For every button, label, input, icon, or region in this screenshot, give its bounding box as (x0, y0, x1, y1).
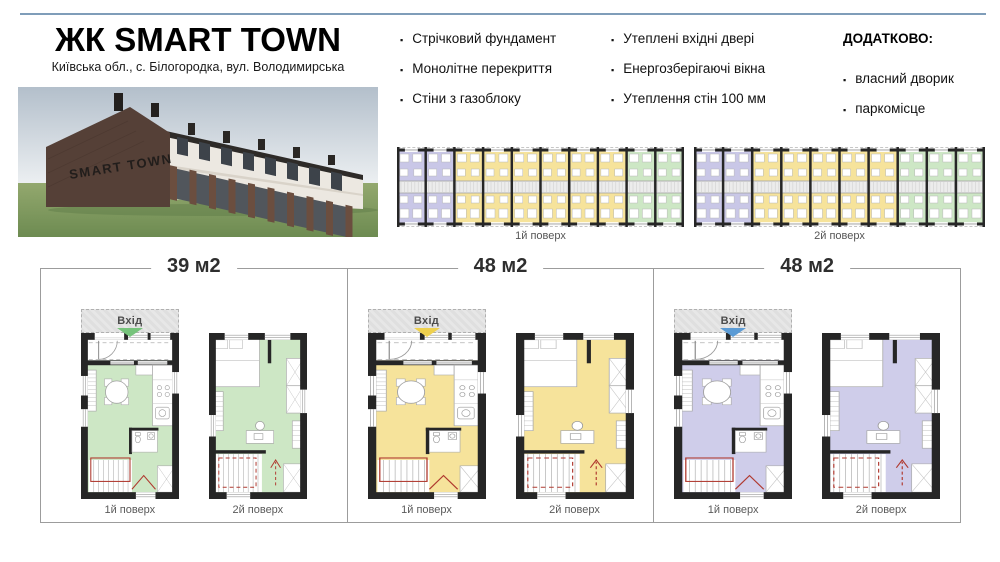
additional-item: власний дворик (843, 71, 954, 88)
floor2-label: 2й поверх (856, 504, 907, 516)
entrance-label: Вхід (117, 315, 142, 327)
unit-panel-48m2-a: 48 м2 Вхід 1й поверх 2й поверх (348, 268, 655, 523)
plan-column-floor2: 2й поверх (516, 333, 634, 516)
feature-item: Стіни з газоблоку (400, 91, 556, 108)
unit-plans: Вхід 1й поверх 2й поверх (41, 309, 347, 516)
entrance-arrow-icon (720, 328, 746, 337)
page-title: ЖК SMART TOWN (15, 21, 381, 59)
floor1-label: 1й поверх (401, 504, 452, 516)
unit-panel-39m2: 39 м2 Вхід 1й поверх 2й поверх (40, 268, 348, 523)
additional-list: власний дворик паркомісце (843, 71, 954, 118)
floor-plan-1-svg (674, 333, 792, 499)
floor-plan-2-svg (516, 333, 634, 499)
slide-header: ЖК SMART TOWN Київська обл., с. Білогоро… (15, 21, 381, 74)
feature-item: Утеплення стін 100 мм (611, 91, 766, 108)
feature-item: Стрічковий фундамент (400, 31, 556, 48)
floor2-label: 2й поверх (232, 504, 283, 516)
floor-plan-1-svg (81, 333, 179, 499)
site-plan-floor2-label: 2й поверх (694, 230, 985, 242)
top-divider-line (20, 13, 986, 15)
plan-column-floor2: 2й поверх (209, 333, 307, 516)
feature-item: Монолітне перекриття (400, 61, 556, 78)
additional-item: паркомісце (843, 101, 954, 118)
unit-area-title: 48 м2 (764, 255, 850, 278)
address-subtitle: Київська обл., с. Білогородка, вул. Воло… (15, 60, 381, 74)
entrance-label: Вхід (414, 315, 439, 327)
features-column-1: Стрічковий фундамент Монолітне перекритт… (400, 31, 556, 121)
building-photo: SMART TOWN (18, 87, 378, 237)
entrance-arrow-icon (414, 328, 440, 337)
site-plan-floor2: 2й поверх (694, 147, 985, 242)
unit-area-title: 39 м2 (151, 255, 237, 278)
plan-column-floor1: Вхід 1й поверх (81, 309, 179, 516)
floor2-label: 2й поверх (549, 504, 600, 516)
site-plan-floor1-svg (397, 147, 684, 227)
feature-item: Енергозберігаючі вікна (611, 61, 766, 78)
floor-plan-1-svg (368, 333, 486, 499)
floor1-label: 1й поверх (104, 504, 155, 516)
slide: { "colors": { "accent": "#7f9db9", "purp… (0, 0, 1000, 562)
entrance-arrow-icon (117, 328, 143, 337)
plan-column-floor2: 2й поверх (822, 333, 940, 516)
entrance-label: Вхід (721, 315, 746, 327)
unit-panels: 39 м2 Вхід 1й поверх 2й поверх 48 м2 (40, 268, 961, 523)
unit-area-title: 48 м2 (458, 255, 544, 278)
site-plan-floor1: 1й поверх (397, 147, 684, 242)
additional-heading: ДОДАТКОВО: (843, 31, 954, 46)
building-photo-svg: SMART TOWN (18, 87, 378, 237)
plan-column-floor1: Вхід 1й поверх (674, 309, 792, 516)
additional-section: ДОДАТКОВО: власний дворик паркомісце (843, 31, 954, 131)
unit-plans: Вхід 1й поверх 2й поверх (348, 309, 654, 516)
floor-plan-2-svg (209, 333, 307, 499)
feature-item: Утеплені вхідні двері (611, 31, 766, 48)
floor-plan-2-svg (822, 333, 940, 499)
site-plan-floor1-label: 1й поверх (397, 230, 684, 242)
unit-plans: Вхід 1й поверх 2й поверх (654, 309, 960, 516)
plan-column-floor1: Вхід 1й поверх (368, 309, 486, 516)
entrance-zone: Вхід (674, 309, 792, 333)
site-plan-floor2-svg (694, 147, 985, 227)
entrance-zone: Вхід (81, 309, 179, 333)
floor1-label: 1й поверх (708, 504, 759, 516)
features-column-2: Утеплені вхідні двері Енергозберігаючі в… (611, 31, 766, 121)
entrance-zone: Вхід (368, 309, 486, 333)
unit-panel-48m2-b: 48 м2 Вхід 1й поверх 2й поверх (654, 268, 961, 523)
